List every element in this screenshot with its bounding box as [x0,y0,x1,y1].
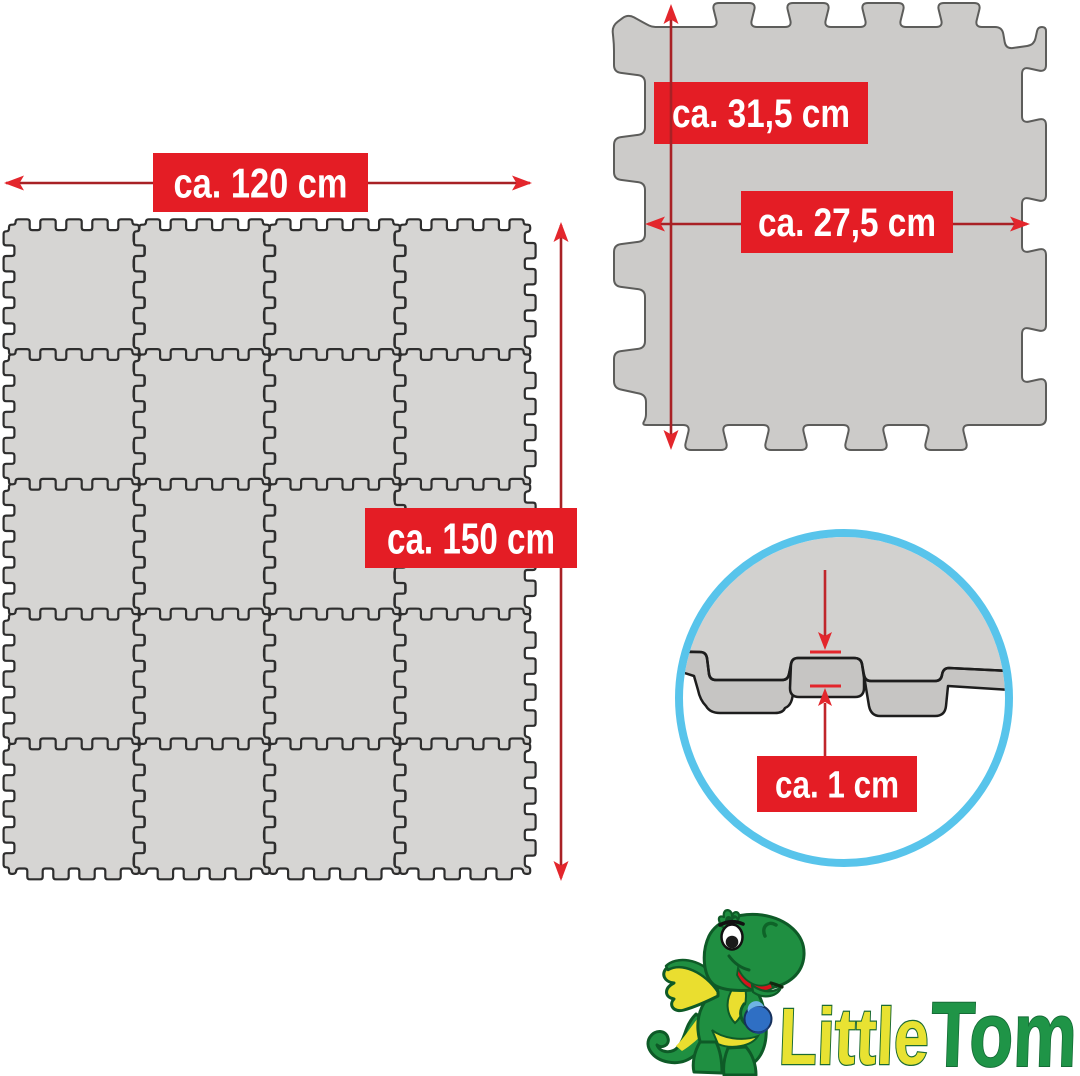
svg-text:ca. 27,5 cm: ca. 27,5 cm [758,201,936,245]
svg-text:ca. 120 cm: ca. 120 cm [174,159,348,206]
svg-text:Little: Little [777,992,930,1076]
svg-text:Tom: Tom [929,983,1079,1076]
svg-text:ca. 1 cm: ca. 1 cm [775,765,899,807]
svg-text:ca. 150 cm: ca. 150 cm [387,515,555,564]
svg-text:ca. 31,5 cm: ca. 31,5 cm [672,92,850,136]
